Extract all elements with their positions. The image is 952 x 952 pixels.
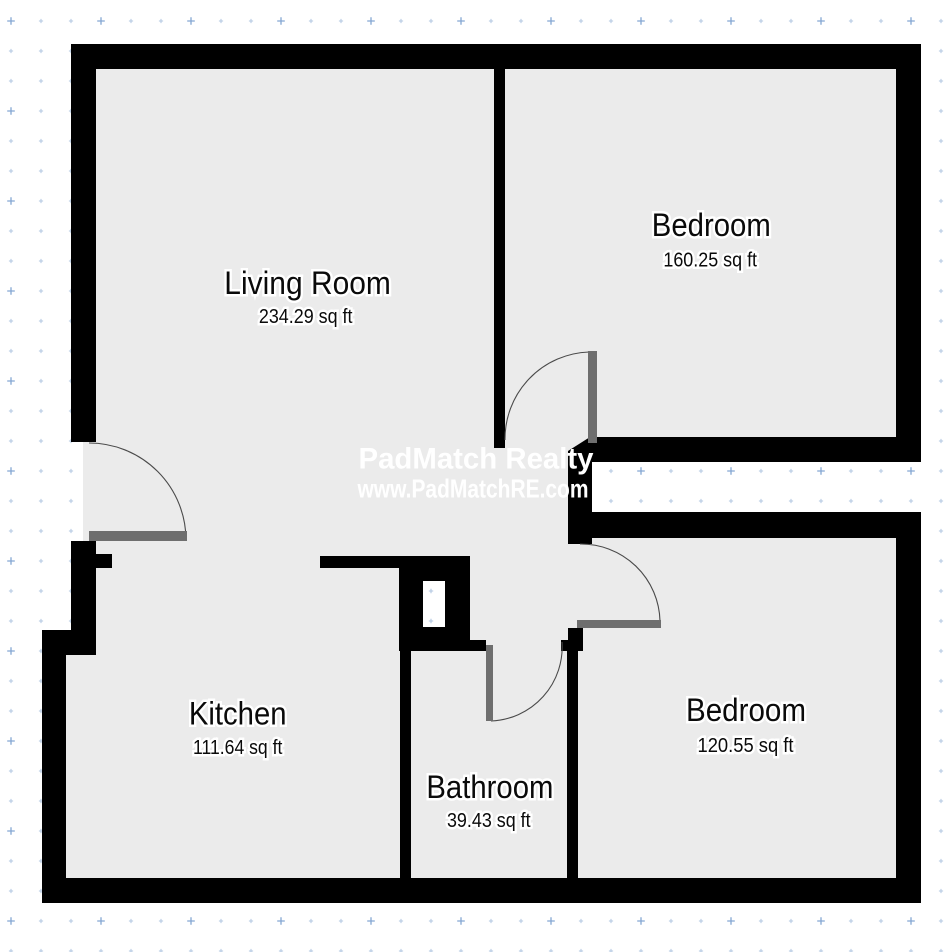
svg-text:160.25 sq ft: 160.25 sq ft xyxy=(663,249,757,271)
svg-text:234.29 sq ft: 234.29 sq ft xyxy=(259,306,353,328)
svg-text:120.55 sq ft: 120.55 sq ft xyxy=(698,735,794,757)
svg-text:39.43 sq ft: 39.43 sq ft xyxy=(447,810,531,832)
svg-text:111.64 sq ft: 111.64 sq ft xyxy=(193,737,283,759)
svg-text:Bathroom: Bathroom xyxy=(426,769,553,805)
svg-text:PadMatch Realty: PadMatch Realty xyxy=(359,443,594,476)
svg-text:Kitchen: Kitchen xyxy=(189,696,287,732)
svg-text:Living Room: Living Room xyxy=(224,265,391,301)
svg-text:www.PadMatchRE.com: www.PadMatchRE.com xyxy=(357,473,589,503)
svg-text:Bedroom: Bedroom xyxy=(686,692,806,728)
svg-text:Bedroom: Bedroom xyxy=(652,207,771,243)
